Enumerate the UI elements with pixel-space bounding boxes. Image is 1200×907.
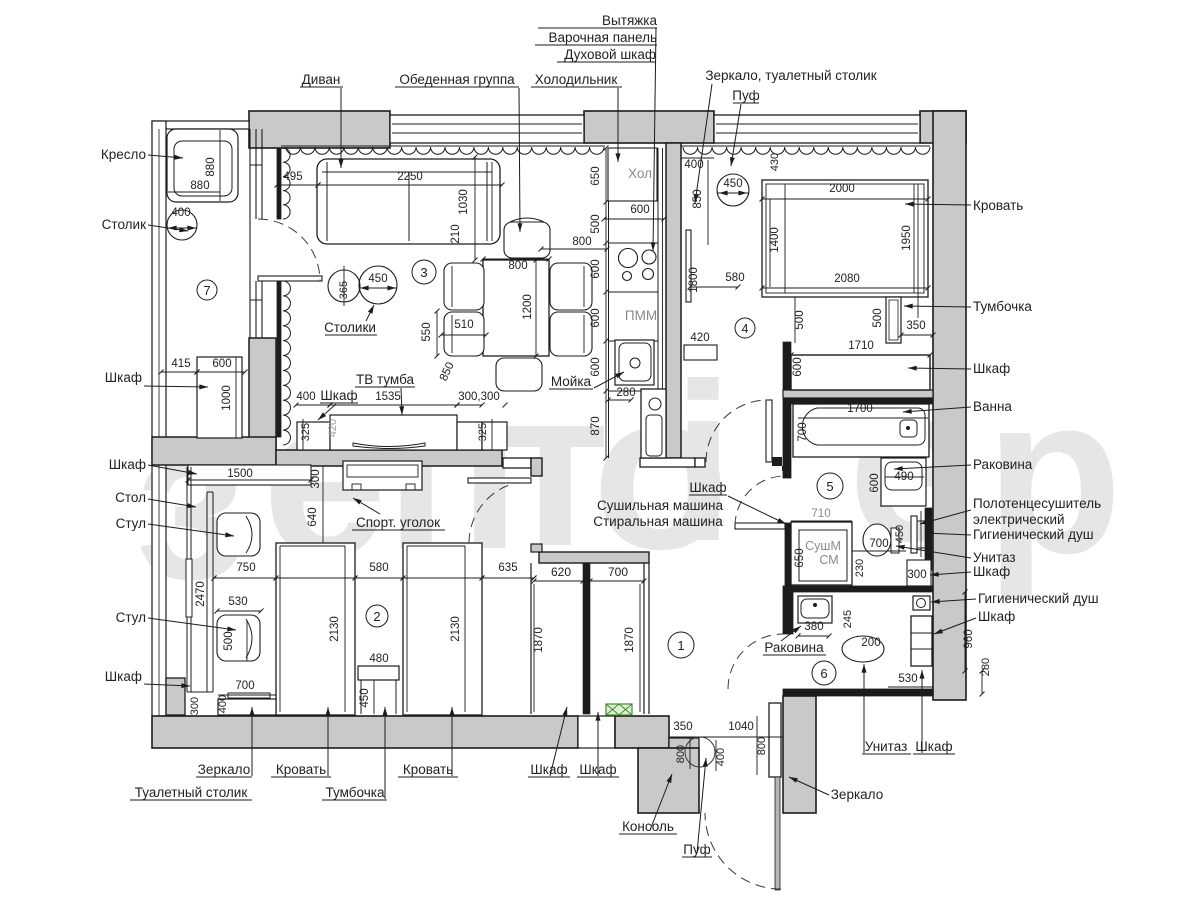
svg-text:2250: 2250 (397, 171, 423, 183)
svg-text:210: 210 (450, 224, 462, 243)
svg-text:245: 245 (842, 610, 854, 628)
svg-text:1870: 1870 (624, 627, 636, 653)
svg-text:200: 200 (861, 637, 880, 649)
svg-text:Полотенцесушитель: Полотенцесушитель (973, 496, 1101, 511)
svg-text:Вытяжка: Вытяжка (602, 13, 657, 28)
svg-text:Стол: Стол (115, 490, 146, 505)
svg-text:500: 500 (794, 310, 806, 329)
svg-text:Гигиенический душ: Гигиенический душ (978, 591, 1099, 606)
svg-text:Унитаз: Унитаз (973, 550, 1016, 565)
svg-text:800: 800 (756, 737, 768, 755)
svg-text:Сушильная машина: Сушильная машина (597, 498, 723, 513)
svg-text:325: 325 (477, 423, 489, 441)
svg-text:300: 300 (907, 569, 926, 581)
svg-text:электрический: электрический (973, 512, 1065, 527)
svg-text:500: 500 (223, 631, 235, 650)
svg-text:Столик: Столик (102, 217, 146, 232)
svg-text:600: 600 (590, 259, 602, 278)
svg-text:Туалетный столик: Туалетный столик (135, 785, 248, 800)
svg-text:870: 870 (590, 416, 602, 435)
svg-text:300,300: 300,300 (458, 391, 500, 403)
svg-text:600: 600 (212, 358, 231, 370)
svg-text:620: 620 (551, 565, 571, 579)
svg-text:Шкаф: Шкаф (105, 370, 142, 385)
svg-text:600: 600 (630, 204, 649, 216)
svg-text:450: 450 (894, 525, 906, 543)
svg-text:Кровать: Кровать (973, 198, 1023, 213)
svg-text:850: 850 (692, 189, 704, 208)
svg-text:420: 420 (327, 419, 339, 437)
svg-text:Стиральная машина: Стиральная машина (593, 514, 723, 529)
svg-text:430: 430 (769, 153, 781, 171)
svg-text:700: 700 (608, 565, 628, 579)
svg-text:1: 1 (677, 638, 684, 653)
svg-text:Стул: Стул (116, 610, 146, 625)
svg-text:280: 280 (616, 387, 635, 399)
svg-text:Шкаф: Шкаф (973, 361, 1010, 376)
svg-text:1030: 1030 (458, 189, 470, 215)
svg-text:Шкаф: Шкаф (973, 564, 1010, 579)
svg-text:1500: 1500 (227, 468, 253, 480)
svg-text:600: 600 (590, 357, 602, 376)
svg-text:Тумбочка: Тумбочка (326, 785, 385, 800)
svg-text:1400: 1400 (769, 227, 781, 253)
svg-text:Шкаф: Шкаф (320, 388, 357, 403)
svg-text:Шкаф: Шкаф (105, 669, 142, 684)
svg-text:2080: 2080 (834, 273, 860, 285)
svg-text:Кровать: Кровать (276, 762, 326, 777)
svg-text:415: 415 (171, 358, 190, 370)
svg-text:Обеденная группа: Обеденная группа (399, 72, 515, 87)
svg-text:530: 530 (228, 596, 247, 608)
svg-text:300: 300 (189, 697, 201, 715)
svg-text:4: 4 (742, 322, 749, 336)
svg-text:Раковина: Раковина (764, 640, 824, 655)
svg-text:500: 500 (872, 308, 884, 327)
svg-text:6: 6 (820, 666, 827, 681)
svg-text:Кресло: Кресло (101, 147, 146, 162)
svg-text:Консоль: Консоль (622, 819, 674, 834)
svg-text:700: 700 (235, 680, 254, 692)
svg-text:1800: 1800 (688, 267, 700, 293)
svg-text:420: 420 (690, 332, 709, 344)
svg-text:1700: 1700 (847, 403, 873, 415)
svg-text:650: 650 (590, 166, 602, 185)
svg-text:Шкаф: Шкаф (530, 762, 567, 777)
svg-text:5: 5 (826, 479, 833, 494)
svg-text:495: 495 (283, 171, 302, 183)
svg-text:450: 450 (723, 178, 742, 190)
svg-text:Шкаф: Шкаф (689, 480, 726, 495)
svg-text:580: 580 (725, 272, 744, 284)
svg-text:580: 580 (369, 562, 388, 574)
svg-text:Гигиенический душ: Гигиенический душ (973, 527, 1094, 542)
svg-text:1710: 1710 (848, 340, 874, 352)
svg-text:Шкаф: Шкаф (915, 739, 952, 754)
svg-text:325: 325 (300, 423, 312, 441)
svg-text:530: 530 (898, 673, 917, 685)
svg-text:800: 800 (572, 236, 591, 248)
svg-text:300: 300 (310, 469, 322, 488)
svg-text:230: 230 (854, 559, 866, 577)
svg-text:2: 2 (373, 609, 380, 624)
svg-text:750: 750 (236, 562, 255, 574)
svg-text:400: 400 (171, 207, 190, 219)
svg-text:450: 450 (359, 688, 371, 707)
svg-text:СушМ: СушМ (805, 539, 841, 553)
svg-text:Тумбочка: Тумбочка (973, 299, 1032, 314)
svg-text:Стул: Стул (116, 516, 146, 531)
svg-text:Мойка: Мойка (551, 374, 592, 389)
svg-text:880: 880 (190, 180, 209, 192)
svg-text:Хол: Хол (628, 166, 652, 181)
svg-text:Диван: Диван (302, 72, 341, 87)
svg-text:Спорт. уголок: Спорт. уголок (356, 515, 440, 530)
svg-text:400: 400 (715, 748, 727, 766)
svg-text:2000: 2000 (829, 183, 855, 195)
svg-text:600: 600 (590, 308, 602, 327)
svg-text:1200: 1200 (522, 294, 534, 320)
svg-text:350: 350 (673, 721, 692, 733)
svg-text:Пуф: Пуф (732, 88, 759, 103)
svg-text:Раковина: Раковина (973, 457, 1033, 472)
svg-text:1870: 1870 (533, 627, 545, 653)
svg-text:СМ: СМ (819, 553, 838, 567)
svg-text:7: 7 (203, 283, 210, 298)
svg-text:1950: 1950 (901, 225, 913, 251)
svg-text:Духовой шкаф: Духовой шкаф (564, 47, 656, 62)
svg-text:600: 600 (869, 473, 881, 492)
svg-text:510: 510 (454, 319, 473, 331)
svg-text:Унитаз: Унитаз (865, 739, 908, 754)
svg-text:Зеркало: Зеркало (831, 787, 883, 802)
svg-text:2130: 2130 (450, 616, 462, 642)
svg-text:Шкаф: Шкаф (978, 609, 1015, 624)
svg-text:700: 700 (869, 538, 888, 550)
svg-text:800: 800 (675, 745, 687, 763)
svg-text:710: 710 (811, 508, 830, 520)
svg-text:550: 550 (421, 322, 433, 341)
svg-text:Шкаф: Шкаф (109, 457, 146, 472)
svg-text:350: 350 (906, 320, 925, 332)
svg-text:2130: 2130 (329, 616, 341, 642)
svg-text:Столики: Столики (324, 320, 376, 335)
svg-text:3: 3 (420, 265, 427, 280)
svg-text:Кровать: Кровать (403, 762, 453, 777)
svg-text:Холодильник: Холодильник (535, 72, 618, 87)
svg-text:880: 880 (205, 157, 217, 176)
svg-text:800: 800 (508, 260, 527, 272)
svg-text:450: 450 (368, 273, 387, 285)
svg-text:640: 640 (307, 507, 319, 526)
svg-text:500: 500 (590, 214, 602, 233)
svg-text:Зеркало: Зеркало (198, 762, 250, 777)
svg-text:400: 400 (296, 391, 315, 403)
svg-text:ТВ тумба: ТВ тумба (356, 372, 414, 387)
svg-text:650: 650 (794, 548, 806, 567)
svg-text:1040: 1040 (728, 721, 754, 733)
svg-text:480: 480 (369, 653, 388, 665)
svg-text:600: 600 (792, 357, 804, 376)
svg-text:ПММ: ПММ (625, 308, 657, 323)
svg-text:635: 635 (498, 562, 517, 574)
svg-text:1000: 1000 (221, 385, 233, 411)
svg-text:1535: 1535 (375, 391, 401, 403)
svg-text:Зеркало, туалетный столик: Зеркало, туалетный столик (705, 68, 876, 83)
svg-text:Ванна: Ванна (973, 399, 1012, 414)
svg-text:2470: 2470 (195, 581, 207, 607)
svg-text:Варочная панель: Варочная панель (548, 30, 657, 45)
svg-text:700: 700 (797, 422, 809, 441)
svg-text:400: 400 (217, 695, 229, 713)
svg-text:380: 380 (804, 621, 823, 633)
